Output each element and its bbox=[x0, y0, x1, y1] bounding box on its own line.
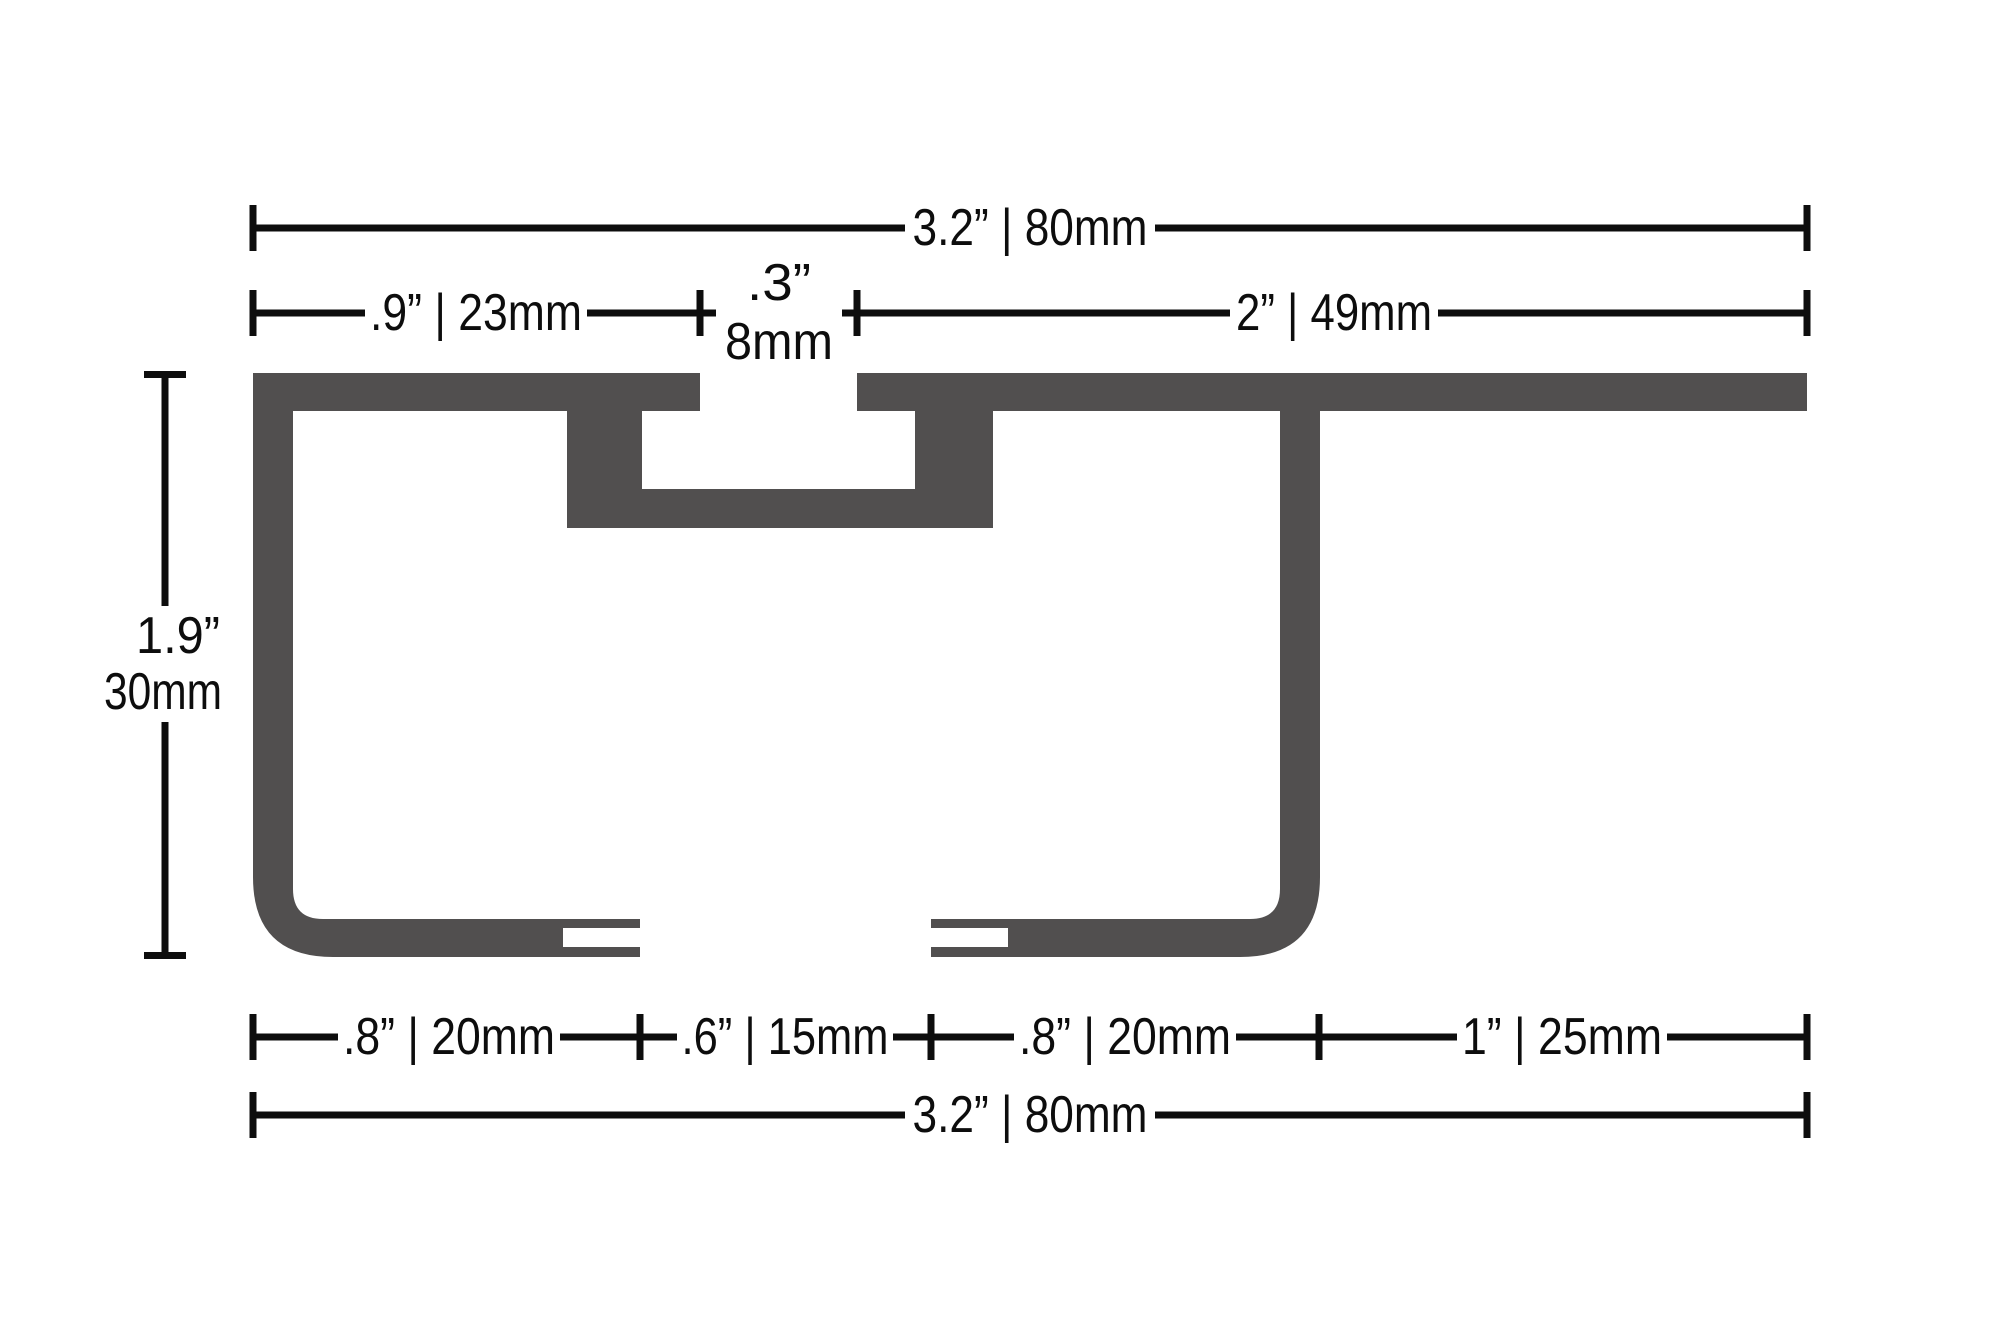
dimension-bottom-segments: .8” | 20mm .6” | 15mm .8” | 20mm 1” | 25… bbox=[250, 1008, 1811, 1066]
dimension-bottom-overall: 3.2” | 80mm bbox=[250, 1086, 1811, 1144]
dimension-line bbox=[253, 225, 905, 232]
dimension-line bbox=[560, 1034, 677, 1041]
dimension-line bbox=[893, 1034, 1014, 1041]
dimension-label-bottom-left-flange: .8” | 20mm bbox=[343, 1008, 555, 1066]
profile-top-plate-right bbox=[857, 373, 1807, 411]
extrusion-profile-drawing: 3.2” | 80mm .9” | 23mm .3” 8mm 2” | 49mm… bbox=[0, 0, 2000, 1333]
dimension-label-height-inches: 1.9” bbox=[136, 607, 220, 665]
dimension-top-overall: 3.2” | 80mm bbox=[250, 199, 1811, 257]
dimension-label-bottom-right-flange: .8” | 20mm bbox=[1019, 1008, 1231, 1066]
dimension-line bbox=[587, 310, 716, 317]
dimension-height: 1.9” 30mm bbox=[104, 371, 222, 959]
dimension-label-bottom-right-offset: 1” | 25mm bbox=[1462, 1008, 1662, 1066]
dimension-line bbox=[253, 1034, 338, 1041]
profile-top-plate-left bbox=[253, 373, 700, 411]
dimension-line bbox=[1438, 310, 1807, 317]
dimension-label-flange-left: .9” | 23mm bbox=[370, 284, 582, 342]
dimension-label-top-overall: 3.2” | 80mm bbox=[913, 199, 1148, 257]
dimension-line bbox=[842, 310, 1230, 317]
dimension-line bbox=[1155, 225, 1807, 232]
dimension-label-height-mm: 30mm bbox=[104, 663, 222, 721]
dimension-line bbox=[253, 310, 365, 317]
dimension-label-slot-mm: 8mm bbox=[725, 313, 833, 371]
dimension-line bbox=[162, 722, 169, 955]
dimension-label-slot-inches: .3” bbox=[747, 254, 811, 312]
dimension-label-bottom-overall: 3.2” | 80mm bbox=[913, 1086, 1148, 1144]
dimension-line bbox=[253, 1112, 905, 1119]
dimension-line bbox=[1667, 1034, 1807, 1041]
profile-cross-section bbox=[253, 373, 1807, 957]
diagram-canvas: 3.2” | 80mm .9” | 23mm .3” 8mm 2” | 49mm… bbox=[0, 0, 2000, 1333]
dimension-label-flange-right: 2” | 49mm bbox=[1236, 284, 1432, 342]
dimension-top-segments: .9” | 23mm .3” 8mm 2” | 49mm bbox=[250, 254, 1811, 371]
profile-t-slot-channel bbox=[567, 410, 993, 528]
dimension-line bbox=[1236, 1034, 1457, 1041]
dimension-line bbox=[162, 375, 169, 606]
dimension-label-bottom-gap: .6” | 15mm bbox=[682, 1008, 889, 1066]
dimension-line bbox=[1155, 1112, 1807, 1119]
